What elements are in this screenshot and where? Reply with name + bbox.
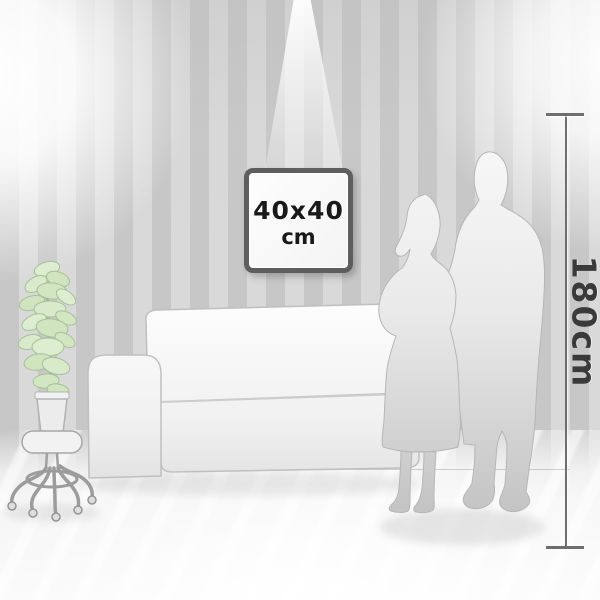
sofa-armrest	[88, 355, 161, 478]
height-label: 180cm	[565, 256, 600, 389]
couple-shadow	[380, 509, 544, 545]
stool-column	[46, 453, 58, 468]
sofa-back-cushion	[146, 304, 401, 404]
sofa	[88, 304, 420, 478]
furniture-and-people-layer	[0, 0, 600, 600]
potted-plant	[17, 259, 79, 433]
room-scene: 40x40 cm 180cm	[0, 0, 600, 600]
plant-leaves	[17, 259, 79, 398]
sofa-seat-base	[160, 393, 420, 472]
frame-unit-label: cm	[281, 225, 315, 249]
woman-body	[379, 194, 461, 452]
stool-seat	[22, 431, 82, 453]
measure-cap-bottom	[546, 546, 584, 549]
frame-size-label: 40x40	[253, 198, 344, 224]
measure-cap-top	[546, 113, 584, 116]
pot-rim	[35, 392, 69, 399]
picture-frame: 40x40 cm	[244, 168, 353, 273]
plant-pot	[37, 399, 67, 433]
man-silhouette	[440, 152, 544, 512]
